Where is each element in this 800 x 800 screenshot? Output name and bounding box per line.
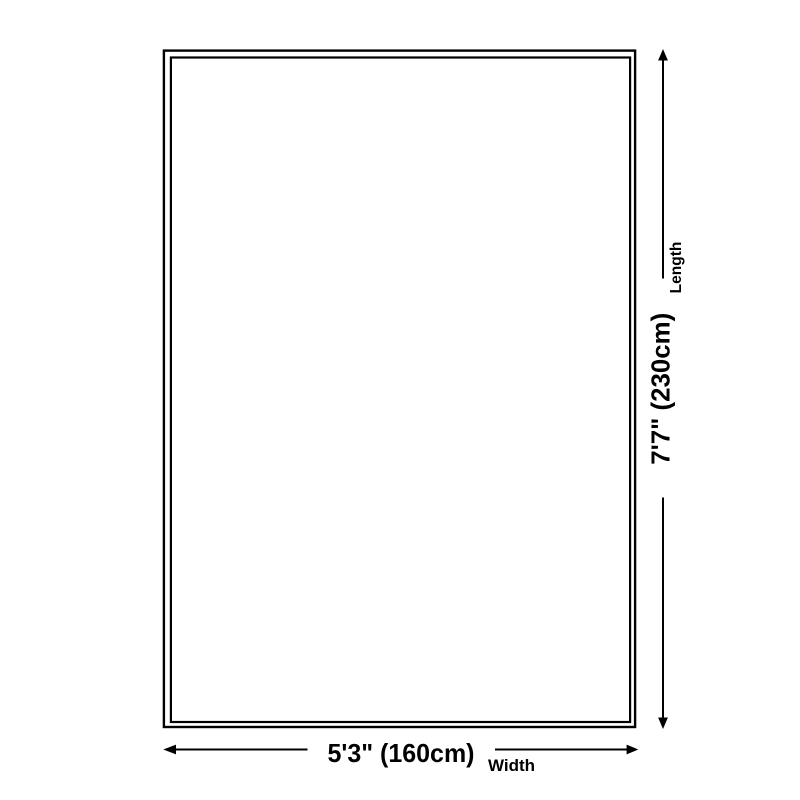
svg-text:5'3" (160cm): 5'3" (160cm): [328, 738, 475, 768]
svg-text:7'7" (230cm): 7'7" (230cm): [646, 313, 676, 465]
svg-text:Width: Width: [488, 756, 535, 775]
svg-text:Length: Length: [668, 242, 685, 294]
